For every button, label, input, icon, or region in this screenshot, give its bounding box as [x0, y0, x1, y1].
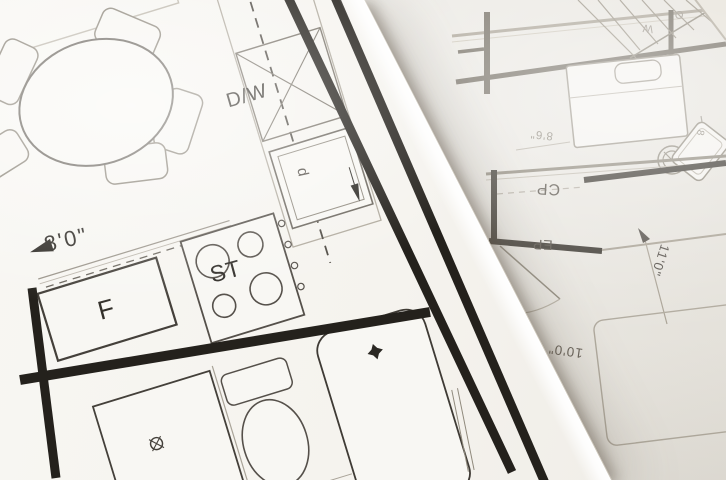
stove-label: ST [208, 256, 244, 286]
dishwasher-label: D/W [224, 81, 270, 112]
cabinet-outline [0, 0, 179, 61]
shower-icon [93, 371, 245, 480]
dim-arrow-icon [28, 239, 54, 258]
bathtub-icon [312, 305, 475, 480]
counter-outline [216, 0, 381, 247]
toilet-icon [220, 356, 321, 480]
sink-label: d [294, 166, 311, 178]
dining-table-icon [3, 20, 188, 184]
top-sheet: D/W d ST F 8'0" [0, 0, 726, 480]
fridge-icon [38, 258, 177, 361]
dining-chairs [0, 0, 224, 234]
stove-icon [181, 211, 313, 343]
dim-8ft-label: 8'0" [42, 224, 90, 255]
top-sheet-shadow-wrap: D/W d ST F 8'0" [0, 0, 726, 480]
paper-edge-highlight [334, 0, 623, 480]
flow-arrow-icon [345, 166, 363, 203]
dishwasher-icon [236, 28, 347, 142]
top-sheet-plan [0, 0, 726, 480]
walls [20, 0, 548, 480]
fridge-label: F [95, 294, 118, 323]
blueprint-photo: CP EP 11'0" 10'0" 8'6" W O 8 [0, 0, 726, 480]
sink-icon [269, 127, 373, 228]
tub-drain-icon [365, 342, 385, 362]
counter-centerline [246, 0, 331, 263]
